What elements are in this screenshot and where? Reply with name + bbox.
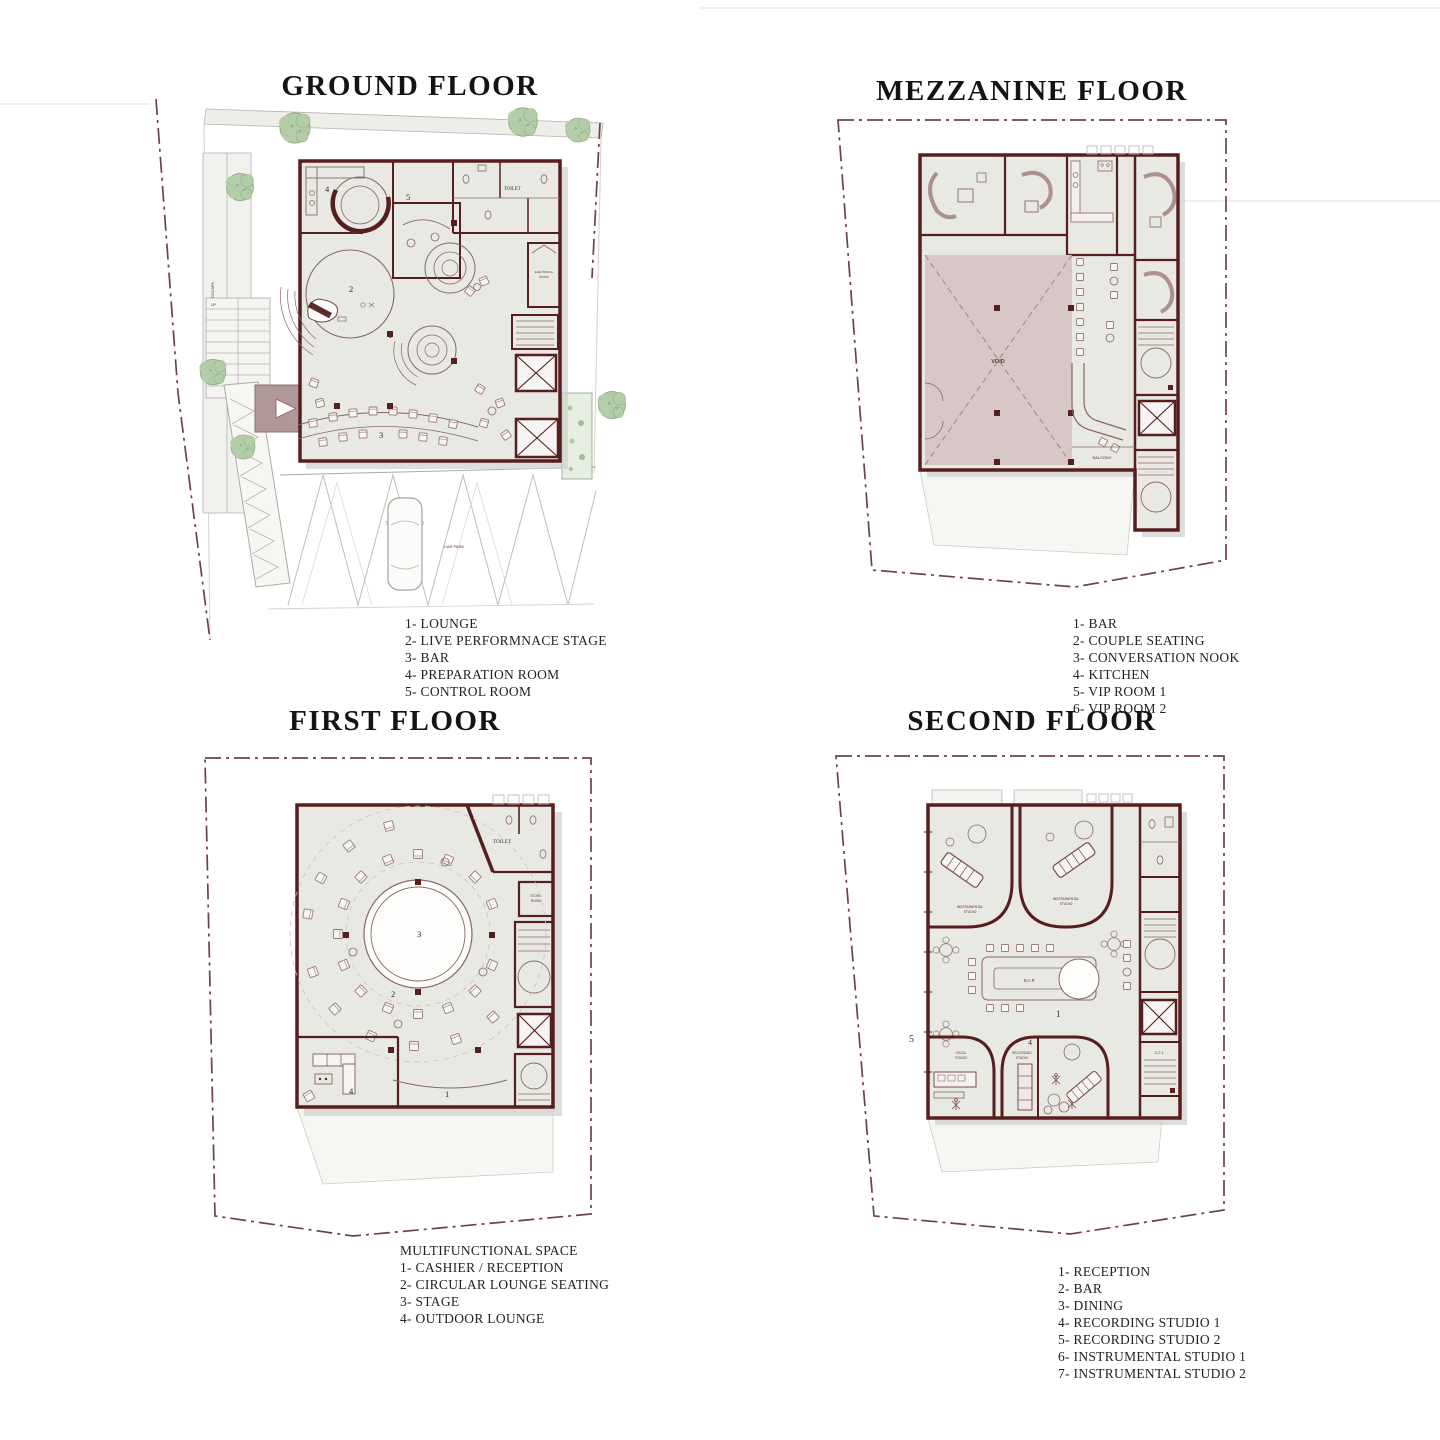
electrical-label: ELECTRICAL — [535, 270, 554, 274]
elevator — [1139, 401, 1175, 435]
stage-number: 3 — [417, 929, 421, 939]
legend-item: 4- OUTDOOR LOUNGE — [400, 1310, 609, 1327]
second-floor-legend: 1- RECEPTION 2- BAR 3- DINING 4- RECORDI… — [1058, 1263, 1246, 1382]
room-number: 5 — [406, 192, 410, 202]
balcony-label: BALCONY — [1092, 455, 1111, 460]
legend-item: 7- INSTRUMENTAL STUDIO 2 — [1058, 1365, 1246, 1382]
legend-item: 1- BAR — [1073, 615, 1240, 632]
stage-number: 2 — [349, 284, 353, 294]
first-floor-plan: TOILET STORE ROOM 3 — [193, 742, 638, 1257]
instrumental-studio-label: STUDIO — [1060, 902, 1073, 906]
second-floor-plan: INSTRUMENTAL STUDIO INSTRUMENTAL STUDIO … — [822, 742, 1262, 1267]
first-floor-legend: MULTIFUNCTIONAL SPACE 1- CASHIER / RECEP… — [400, 1242, 609, 1327]
bar-label: BAR — [1024, 978, 1036, 983]
legend-item: 3- STAGE — [400, 1293, 609, 1310]
up-label: UP — [211, 303, 217, 307]
first-building: TOILET STORE ROOM 3 — [290, 795, 562, 1184]
ground-floor-plan: LANDSCAPE UP — [148, 93, 648, 641]
recording-studio-label: STUDIO — [1016, 1056, 1029, 1060]
ground-floor-drawing: LANDSCAPE UP — [148, 93, 648, 641]
car-park-label: CAR PARK — [444, 544, 464, 549]
vocal-studio-label: VOCAL — [956, 1051, 967, 1055]
legend-item: 2- BAR — [1058, 1280, 1246, 1297]
legend-item: 3- BAR — [405, 649, 607, 666]
legend-item: 3- CONVERSATION NOOK — [1073, 649, 1240, 666]
reception-number: 1 — [445, 1089, 449, 1099]
legend-item: 2- LIVE PERFORMNACE STAGE — [405, 632, 607, 649]
instrumental-studio-label: INSTRUMENTAL — [957, 905, 983, 909]
second-building: INSTRUMENTAL STUDIO INSTRUMENTAL STUDIO … — [909, 790, 1187, 1172]
legend-item: 3- DINING — [1058, 1297, 1246, 1314]
sc1-label: S.C 1 — [1155, 1051, 1164, 1055]
ground-building: TOILET 4 5 ELECTRICAL ROOM — [280, 161, 568, 469]
reception-number: 1 — [1056, 1009, 1061, 1019]
legend-item: 4- RECORDING STUDIO 1 — [1058, 1314, 1246, 1331]
recording-studio-number: 4 — [1028, 1038, 1032, 1047]
toilet-label: TOILET — [504, 187, 521, 192]
car-park: CAR PARK — [268, 467, 596, 609]
bar-number: 3 — [379, 430, 383, 440]
legend-item: 1- RECEPTION — [1058, 1263, 1246, 1280]
legend-item: 1- LOUNGE — [405, 615, 607, 632]
recording-studio-2-number: 5 — [909, 1034, 914, 1045]
mezzanine-floor-legend: 1- BAR 2- COUPLE SEATING 3- CONVERSATION… — [1073, 615, 1240, 717]
instrumental-studio-label: STUDIO — [964, 910, 977, 914]
recording-studio-label: RECORDING — [1012, 1051, 1032, 1055]
mezzanine-building: VOID BALCONY — [920, 146, 1185, 555]
instrumental-studio-label: INSTRUMENTAL — [1053, 897, 1079, 901]
legend-item: 5- CONTROL ROOM — [405, 683, 607, 700]
legend-item: 2- CIRCULAR LOUNGE SEATING — [400, 1276, 609, 1293]
vocal-studio-label: STUDIO — [955, 1056, 968, 1060]
ground-floor-legend: 1- LOUNGE 2- LIVE PERFORMNACE STAGE 3- B… — [405, 615, 607, 700]
seating-number: 2 — [391, 989, 395, 999]
appliance-row — [1087, 146, 1153, 154]
legend-item: 1- CASHIER / RECEPTION — [400, 1259, 609, 1276]
scan-artifact — [0, 103, 150, 105]
scan-artifact — [700, 7, 1440, 9]
void-area: VOID — [925, 255, 1074, 465]
void-label: VOID — [991, 359, 1004, 365]
legend-item: 2- COUPLE SEATING — [1073, 632, 1240, 649]
store-room-label: ROOM — [531, 899, 541, 903]
second-floor-title: SECOND FLOOR — [907, 705, 1156, 738]
electrical-label: ROOM — [539, 275, 549, 279]
second-floor-drawing: INSTRUMENTAL STUDIO INSTRUMENTAL STUDIO … — [822, 742, 1262, 1267]
legend-item: 6- INSTRUMENTAL STUDIO 1 — [1058, 1348, 1246, 1365]
legend-item: 5- RECORDING STUDIO 2 — [1058, 1331, 1246, 1348]
legend-item: 5- VIP ROOM 1 — [1073, 683, 1240, 700]
first-floor-drawing: TOILET STORE ROOM 3 — [193, 742, 638, 1257]
first-floor-title: FIRST FLOOR — [289, 705, 501, 738]
legend-header: MULTIFUNCTIONAL SPACE — [400, 1242, 609, 1259]
legend-item: 4- PREPARATION ROOM — [405, 666, 607, 683]
mezzanine-floor-title: MEZZANINE FLOOR — [876, 75, 1188, 108]
car — [386, 498, 424, 590]
mezzanine-floor-drawing: VOID BALCONY — [822, 105, 1252, 620]
mezzanine-floor-plan: VOID BALCONY — [822, 105, 1252, 620]
legend-item: 4- KITCHEN — [1073, 666, 1240, 683]
floor-plan-sheet: { "colors": { "c-wall": "#571e1e", "c-li… — [0, 0, 1440, 1440]
